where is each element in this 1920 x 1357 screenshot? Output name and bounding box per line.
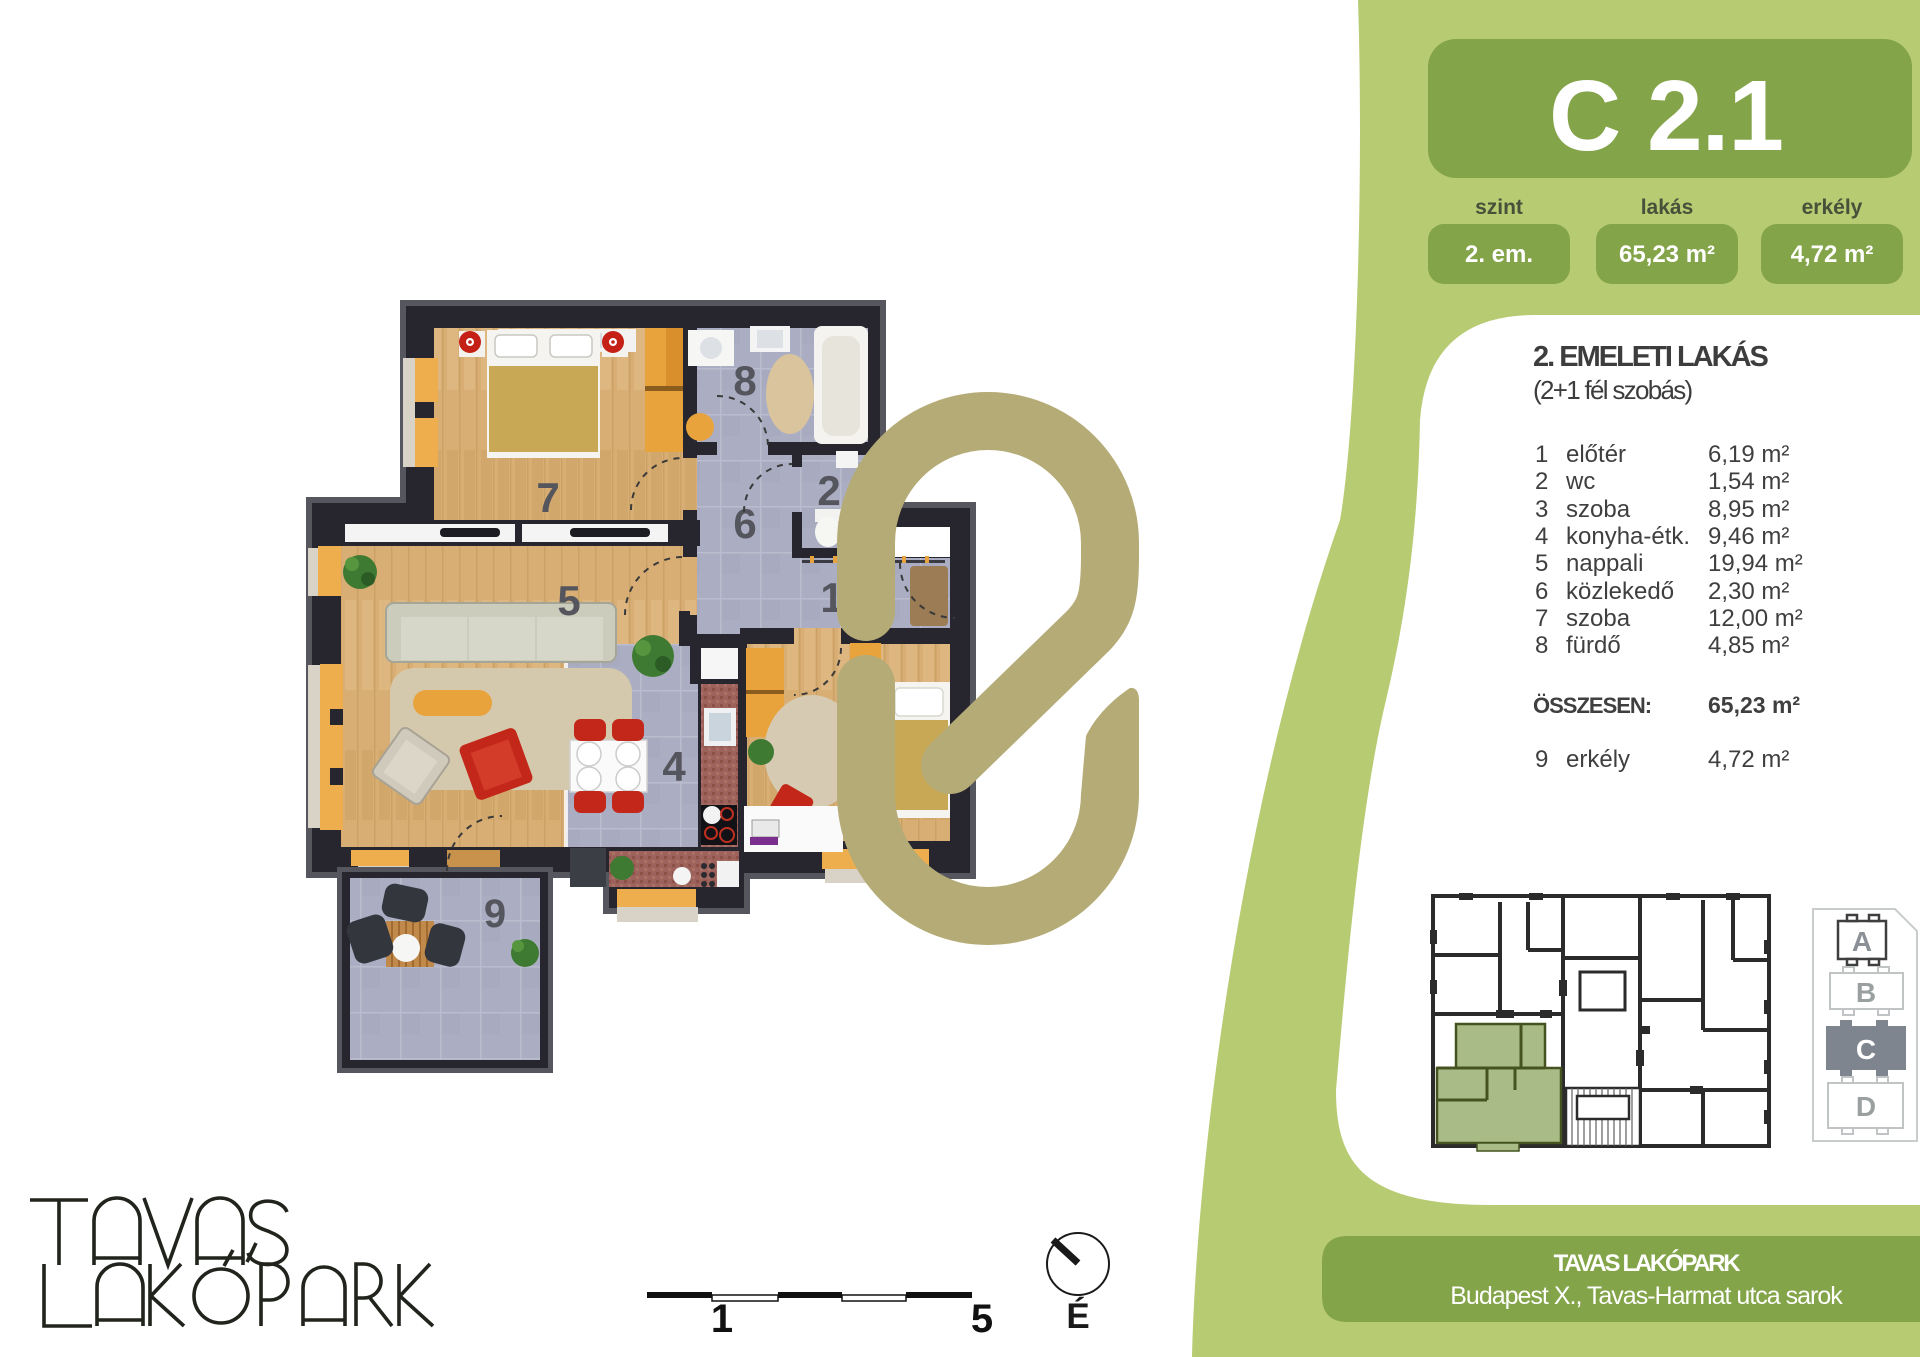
svg-text:2: 2 bbox=[1535, 468, 1548, 495]
svg-text:erkély: erkély bbox=[1802, 196, 1863, 219]
svg-text:1,54 m²: 1,54 m² bbox=[1708, 468, 1789, 495]
svg-text:65,23 m²: 65,23 m² bbox=[1708, 692, 1800, 718]
svg-text:Budapest X., Tavas-Harmat utca: Budapest X., Tavas-Harmat utca sarok bbox=[1450, 1282, 1843, 1310]
svg-text:12,00 m²: 12,00 m² bbox=[1708, 605, 1803, 632]
svg-text:nappali: nappali bbox=[1566, 550, 1643, 577]
svg-text:8: 8 bbox=[733, 357, 756, 404]
svg-text:7: 7 bbox=[1535, 605, 1548, 632]
svg-text:4: 4 bbox=[662, 743, 686, 790]
svg-text:2. EMELETI LAKÁS: 2. EMELETI LAKÁS bbox=[1533, 339, 1769, 373]
svg-text:6,19 m²: 6,19 m² bbox=[1708, 441, 1789, 468]
svg-text:wc: wc bbox=[1565, 468, 1595, 495]
svg-text:2,30 m²: 2,30 m² bbox=[1708, 578, 1789, 605]
svg-text:ÖSSZESEN:: ÖSSZESEN: bbox=[1533, 693, 1651, 718]
svg-text:65,23 m²: 65,23 m² bbox=[1619, 241, 1715, 268]
svg-text:É: É bbox=[1066, 1296, 1089, 1336]
svg-text:A: A bbox=[1852, 926, 1872, 957]
svg-text:6: 6 bbox=[1535, 578, 1548, 605]
svg-text:2. em.: 2. em. bbox=[1465, 241, 1533, 268]
svg-text:(2+1 fél szobás): (2+1 fél szobás) bbox=[1533, 375, 1693, 405]
svg-text:5: 5 bbox=[971, 1297, 993, 1341]
svg-text:19,94 m²: 19,94 m² bbox=[1708, 550, 1803, 577]
svg-text:4,85 m²: 4,85 m² bbox=[1708, 632, 1789, 659]
svg-text:9,46 m²: 9,46 m² bbox=[1708, 523, 1789, 550]
svg-text:fürdő: fürdő bbox=[1566, 632, 1621, 659]
svg-text:erkély: erkély bbox=[1566, 746, 1630, 773]
svg-text:8,95 m²: 8,95 m² bbox=[1708, 496, 1789, 523]
svg-text:szoba: szoba bbox=[1566, 496, 1631, 523]
svg-text:8: 8 bbox=[1535, 632, 1548, 659]
svg-text:előtér: előtér bbox=[1566, 441, 1626, 468]
svg-text:C 2.1: C 2.1 bbox=[1549, 60, 1783, 172]
svg-text:szoba: szoba bbox=[1566, 605, 1631, 632]
svg-text:2: 2 bbox=[817, 467, 840, 514]
svg-text:D: D bbox=[1856, 1091, 1876, 1122]
svg-text:7: 7 bbox=[536, 474, 559, 521]
svg-text:9: 9 bbox=[1535, 746, 1548, 773]
svg-text:4,72 m²: 4,72 m² bbox=[1708, 746, 1789, 773]
svg-text:4,72 m²: 4,72 m² bbox=[1791, 241, 1874, 268]
svg-text:1: 1 bbox=[1535, 441, 1548, 468]
svg-text:3: 3 bbox=[1535, 496, 1548, 523]
svg-text:9: 9 bbox=[484, 892, 506, 936]
svg-text:4: 4 bbox=[1535, 523, 1548, 550]
svg-text:közlekedő: közlekedő bbox=[1566, 578, 1674, 605]
svg-text:1: 1 bbox=[711, 1297, 733, 1341]
svg-text:5: 5 bbox=[1535, 550, 1548, 577]
svg-text:TAVAS LAKÓPARK: TAVAS LAKÓPARK bbox=[1554, 1249, 1742, 1277]
svg-text:5: 5 bbox=[557, 577, 580, 624]
svg-text:lakás: lakás bbox=[1641, 196, 1694, 219]
svg-text:szint: szint bbox=[1475, 196, 1523, 219]
svg-text:C: C bbox=[1856, 1034, 1876, 1065]
svg-text:B: B bbox=[1856, 977, 1876, 1008]
svg-text:konyha-étk.: konyha-étk. bbox=[1566, 523, 1690, 550]
